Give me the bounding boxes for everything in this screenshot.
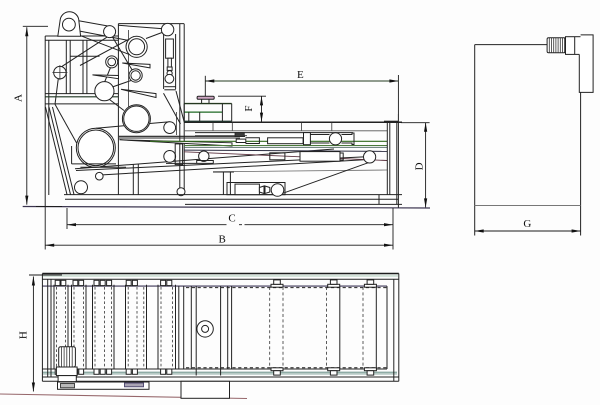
svg-text:B: B [219, 233, 226, 245]
svg-text:F: F [243, 105, 255, 111]
svg-text:A: A [12, 94, 24, 102]
svg-text:H: H [17, 331, 29, 339]
svg-text:G: G [523, 218, 531, 230]
svg-text:E: E [297, 69, 304, 81]
svg-text:C: C [228, 213, 235, 225]
svg-text:D: D [413, 162, 425, 170]
